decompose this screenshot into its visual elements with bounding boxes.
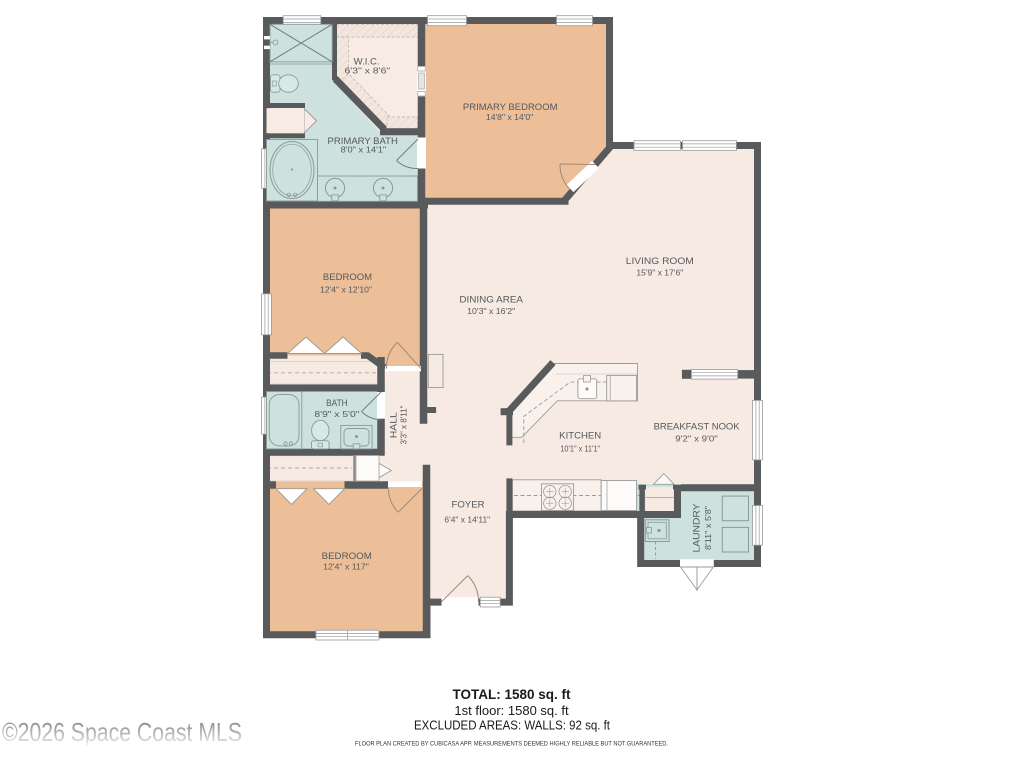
svg-text:LIVING ROOM: LIVING ROOM <box>626 256 694 266</box>
svg-text:12'4" x 117": 12'4" x 117" <box>323 562 369 572</box>
svg-text:BEDROOM: BEDROOM <box>323 272 372 282</box>
svg-text:14'8" x 14'0": 14'8" x 14'0" <box>486 112 533 122</box>
svg-text:12'4" x 12'10": 12'4" x 12'10" <box>320 285 372 295</box>
svg-text:BATH: BATH <box>326 398 348 408</box>
svg-text:10'1" x 11'1": 10'1" x 11'1" <box>560 443 600 453</box>
svg-text:8'9" x 5'0": 8'9" x 5'0" <box>314 409 359 419</box>
svg-text:15'9" x 17'6": 15'9" x 17'6" <box>636 268 683 278</box>
svg-text:FOYER: FOYER <box>452 500 485 510</box>
svg-text:KITCHEN: KITCHEN <box>559 430 601 440</box>
svg-text:FLOOR PLAN CREATED BY CUBICASA: FLOOR PLAN CREATED BY CUBICASA APP. MEAS… <box>355 741 668 748</box>
svg-text:BEDROOM: BEDROOM <box>322 551 372 561</box>
svg-text:6'4" x 14'11": 6'4" x 14'11" <box>444 515 490 525</box>
svg-text:BREAKFAST NOOK: BREAKFAST NOOK <box>654 422 741 432</box>
svg-text:8'0" x 14'1": 8'0" x 14'1" <box>341 145 387 155</box>
svg-text:DINING AREA: DINING AREA <box>459 294 524 304</box>
svg-text:3'3" x 8'11": 3'3" x 8'11" <box>400 405 409 444</box>
svg-text:HALL: HALL <box>389 412 399 438</box>
svg-text:10'3" x 16'2": 10'3" x 16'2" <box>467 306 515 316</box>
svg-text:TOTAL: 1580 sq. ft: TOTAL: 1580 sq. ft <box>452 687 571 702</box>
svg-text:EXCLUDED AREAS: WALLS: 92 sq.: EXCLUDED AREAS: WALLS: 92 sq. ft <box>414 718 610 733</box>
svg-text:LAUNDRY: LAUNDRY <box>691 504 701 553</box>
svg-text:©2026 Space Coast MLS: ©2026 Space Coast MLS <box>2 717 242 747</box>
svg-text:1st floor: 1580 sq. ft: 1st floor: 1580 sq. ft <box>454 703 569 718</box>
svg-text:6'3" x 8'6": 6'3" x 8'6" <box>345 65 391 75</box>
svg-text:8'11" x 5'8": 8'11" x 5'8" <box>704 506 713 550</box>
svg-text:PRIMARY BEDROOM: PRIMARY BEDROOM <box>463 102 558 112</box>
svg-text:9'2" x 9'0": 9'2" x 9'0" <box>675 434 718 444</box>
